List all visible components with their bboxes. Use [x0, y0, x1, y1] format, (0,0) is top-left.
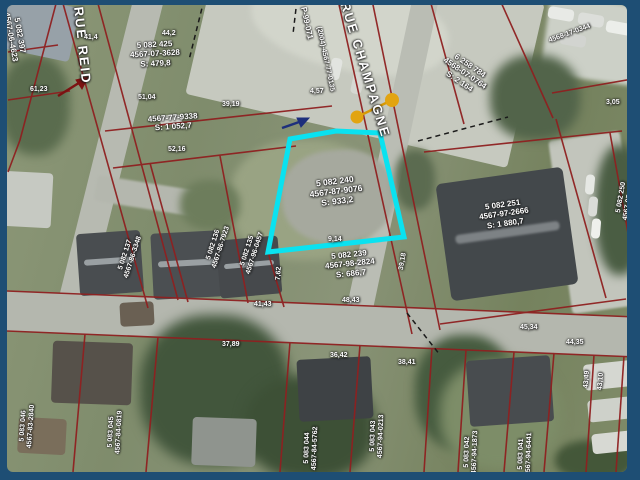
- measurement-label: 39,19: [222, 101, 240, 108]
- lot-label: 5 083 0454567-84-0819: [106, 410, 125, 454]
- measurement-label: 3,05: [606, 99, 620, 106]
- lot-label: 5 083 0444567-84-5762: [303, 426, 321, 470]
- measurement-label: 7,62: [275, 266, 283, 280]
- cadastre-overlay: [7, 5, 627, 472]
- measurement-label: 38,41: [398, 359, 416, 366]
- lot-label: 5 082 4254567-07-3628S: 479,8: [99, 37, 210, 71]
- measurement-label: 61,23: [30, 86, 48, 93]
- lot-label: 5 083 0414567-94-6441: [517, 432, 535, 472]
- blue-direction-arrow-icon: [282, 118, 309, 128]
- measurement-label: 44,2: [162, 30, 176, 37]
- lot-label: 5 083 0434567-94-0213: [369, 414, 387, 458]
- measurement-label: 41,43: [254, 301, 272, 308]
- lot-label: 5 083 0464567-83-2840: [18, 404, 38, 449]
- measurement-label: 4,57: [310, 88, 324, 95]
- measurement-label: 41,4: [84, 34, 98, 41]
- measurement-label: 36,42: [330, 352, 348, 359]
- measurement-label: 45,34: [520, 324, 538, 331]
- lot-label: 5 083 0424567-94-1873: [463, 430, 481, 472]
- lot-boundary-lines: [7, 5, 627, 472]
- measurement-label: 52,16: [168, 146, 186, 153]
- aerial-cadastre-map[interactable]: RUE REID RUE CHAMPAGNE 5 082 240 4567-87…: [7, 5, 627, 472]
- measurement-label: 51,04: [138, 94, 156, 101]
- measurement-label: 37,89: [222, 341, 240, 348]
- address-point-marker: [385, 93, 399, 107]
- map-canvas: RUE REID RUE CHAMPAGNE 5 082 240 4567-87…: [7, 5, 627, 472]
- measurement-label: 48,43: [342, 297, 360, 304]
- listing-photo-frame: RUE REID RUE CHAMPAGNE 5 082 240 4567-87…: [0, 0, 640, 480]
- measurement-label: 9,14: [328, 236, 342, 243]
- address-point-marker: [351, 111, 364, 124]
- measurement-label: 44,35: [566, 339, 584, 346]
